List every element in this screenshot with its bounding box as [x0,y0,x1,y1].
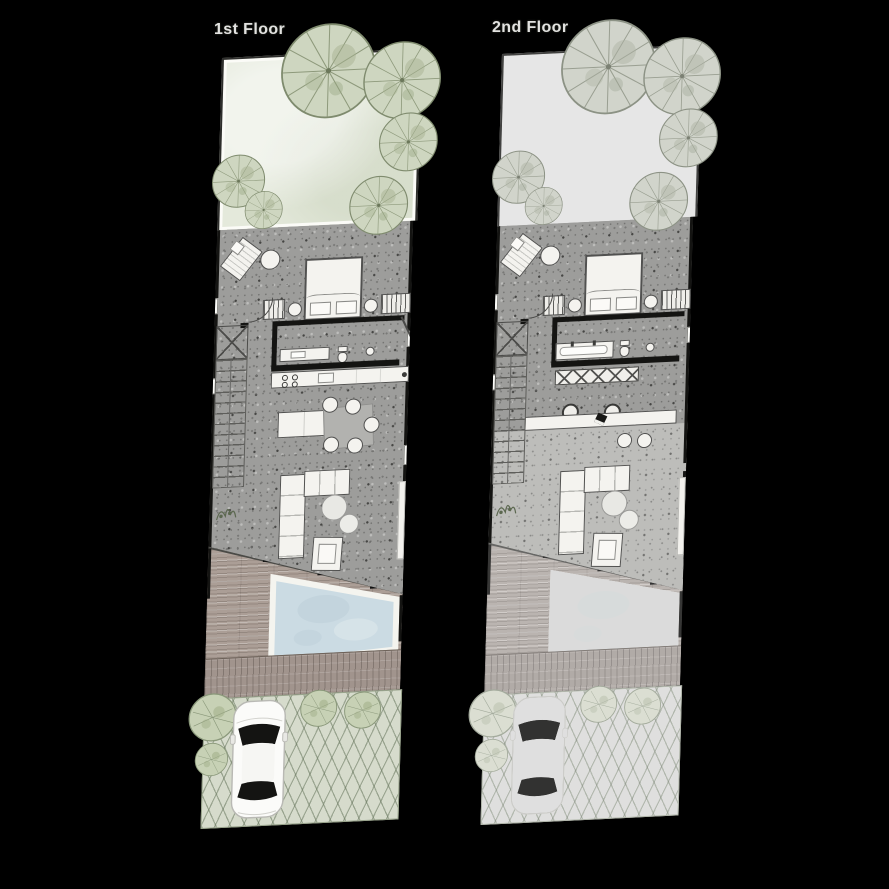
house-interior [487,213,694,602]
house-interior [207,217,414,606]
bed [304,256,364,321]
wall-segment [683,343,690,463]
shrub-icon [298,687,339,729]
shrub-icon [578,683,619,725]
toilet-bowl [619,346,629,358]
nightstand [364,298,378,313]
sectional-sofa [278,474,306,559]
pillow [336,300,357,314]
pillow [590,298,611,312]
sectional-sofa-arm [584,465,631,493]
wall-segment [494,224,500,294]
garden [217,48,422,230]
garden [497,44,702,226]
window [494,294,498,310]
floor-plans-canvas: 1st Floor 2nd Floor [0,0,889,889]
armchair-cushion [317,544,337,564]
tree-icon [377,109,441,174]
wall-segment [678,591,682,637]
shrub-icon [622,685,663,727]
wall-segment [687,215,694,327]
side-table [260,249,281,270]
tub-tap [571,341,574,346]
wash-basin [645,343,654,352]
potted-plant-icon [493,493,520,522]
wall-segment [404,347,411,445]
nightstand [288,302,302,317]
driveway [200,689,402,829]
dining-chair [363,416,379,433]
armchair [591,533,624,567]
staircase [492,321,529,485]
dining-chair [347,437,363,454]
floor-plan-first [201,48,418,827]
tree-icon [523,185,564,227]
wall-segment [214,228,220,298]
tree-icon [347,173,411,238]
armchair [311,537,344,571]
cooktop-burner [292,374,298,380]
cooktop-burner [292,381,298,387]
vanity-sink [291,351,306,359]
tree-icon [657,105,721,170]
bed [584,252,644,317]
car-icon [508,694,569,817]
shrub-icon [193,741,230,779]
sectional-sofa [558,470,586,555]
counter-seam [380,368,381,382]
tv-console [397,481,406,559]
side-table [540,245,561,266]
closet [555,366,639,385]
wall-segment [398,595,402,641]
driveway [480,685,682,825]
counter-seam [356,369,357,383]
floor-title-second: 2nd Floor [492,18,568,37]
floor-title-first: 1st Floor [214,20,285,39]
floor-plan-second [481,44,698,823]
dining-chair [323,436,339,453]
kitchen-sink [318,373,334,384]
window [403,445,408,465]
bathtub [555,341,613,361]
shrub-icon [473,737,510,775]
armchair-cushion [597,540,617,560]
wardrobe [661,289,692,310]
window [687,327,691,343]
tub-tap [593,340,596,345]
cooktop-burner [282,382,288,388]
wall-segment [271,321,277,369]
wardrobe [381,293,412,314]
bathtub-basin [559,345,607,356]
staircase [212,325,249,489]
faucet [402,372,407,377]
potted-plant-icon [213,497,240,526]
tree-icon [627,169,691,234]
cooktop-burner [282,375,288,381]
wall-segment [407,219,414,331]
kitchen-island [277,410,330,439]
car-icon [228,698,289,821]
window [214,298,218,314]
stair-landing [216,325,249,361]
tv-console [677,477,686,555]
pillow [616,296,637,310]
pillow [310,302,331,316]
tree-icon [243,189,284,231]
nightstand [644,294,658,309]
shrub-icon [342,689,383,731]
stair-landing [496,321,529,357]
wash-basin [365,347,374,356]
sectional-sofa-arm [304,469,351,497]
nightstand [568,298,582,313]
bathroom-vanity [279,347,329,362]
coffee-table [339,513,360,534]
island-seam [303,412,305,436]
